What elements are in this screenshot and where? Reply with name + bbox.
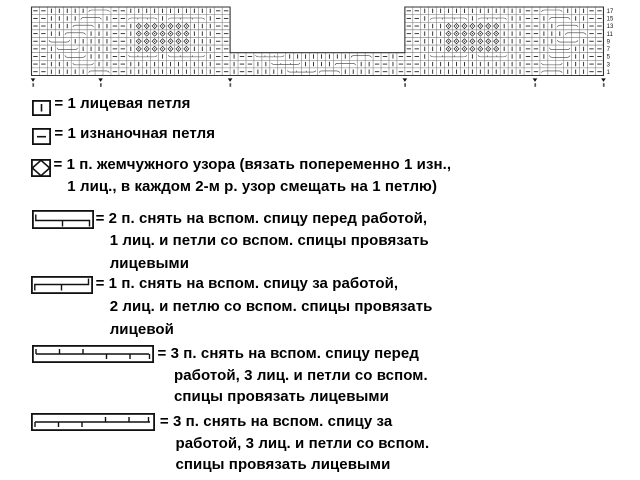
svg-text:7: 7 — [607, 47, 611, 53]
svg-text:17: 17 — [607, 9, 614, 15]
svg-text:15: 15 — [607, 17, 614, 23]
svg-text:13: 13 — [607, 24, 614, 30]
svg-text:11: 11 — [607, 32, 614, 38]
svg-text:1: 1 — [607, 70, 611, 76]
svg-text:5: 5 — [607, 55, 611, 61]
svg-text:9: 9 — [607, 39, 611, 45]
svg-text:3: 3 — [607, 62, 611, 68]
